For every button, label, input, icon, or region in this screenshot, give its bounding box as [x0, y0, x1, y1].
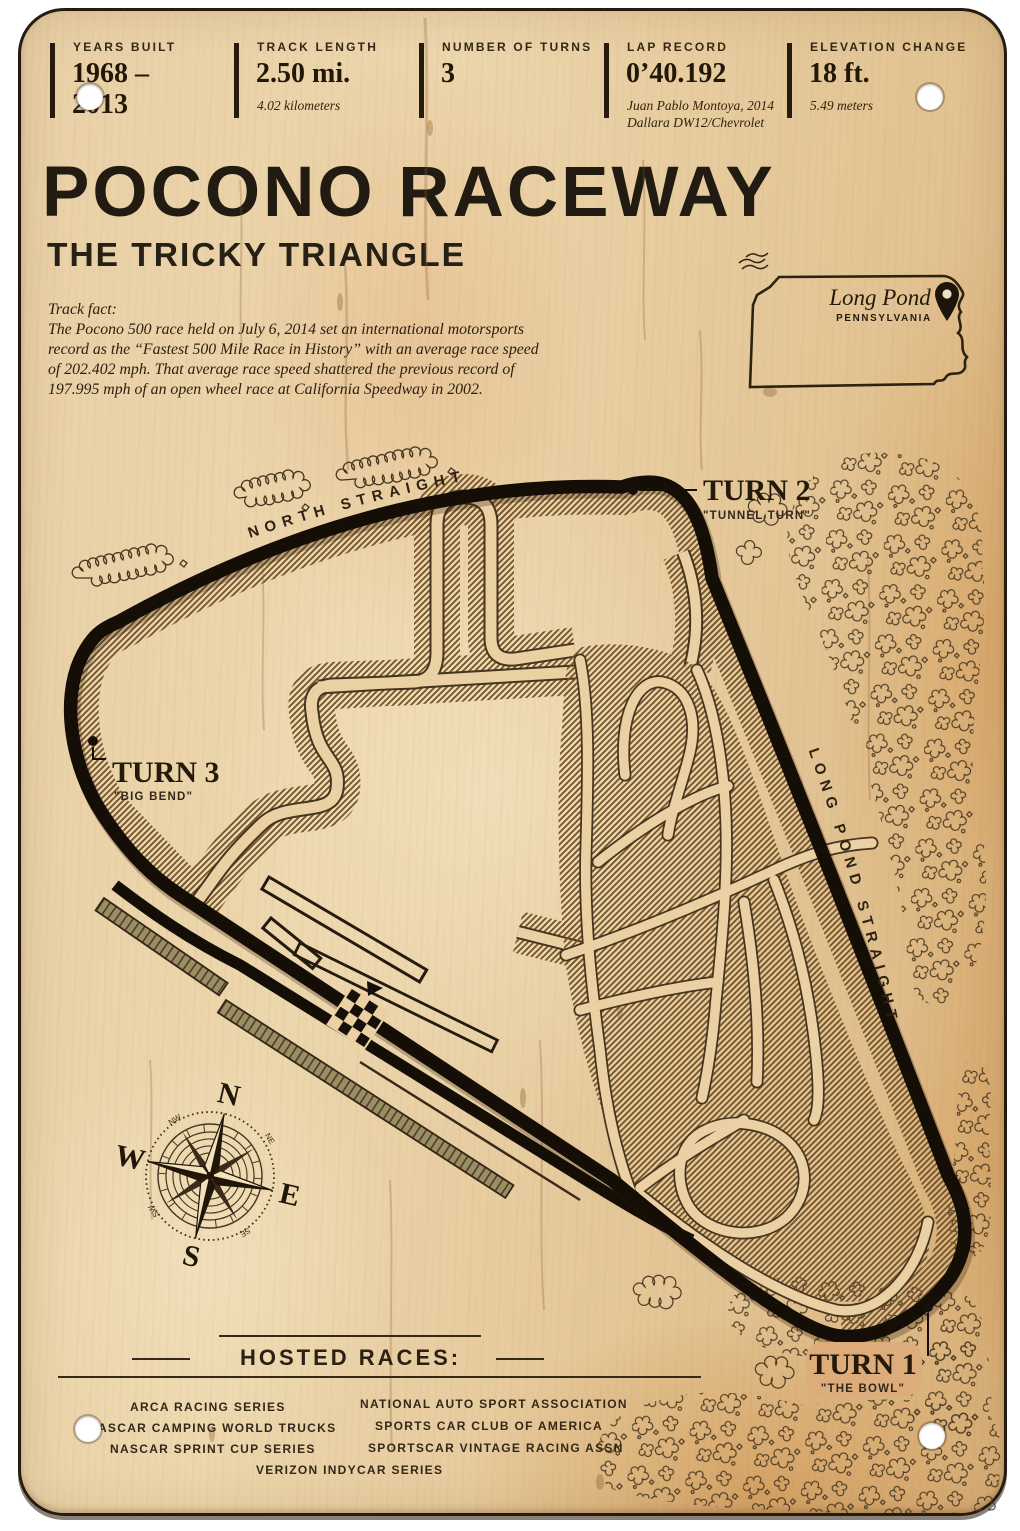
svg-text:"BIG BEND": "BIG BEND" — [114, 791, 193, 803]
svg-text:NE: NE — [263, 1132, 277, 1146]
svg-text:NW: NW — [167, 1112, 183, 1127]
svg-text:SE: SE — [238, 1226, 252, 1239]
svg-text:N: N — [215, 1076, 244, 1113]
svg-text:"TUNNEL TURN": "TUNNEL TURN" — [703, 510, 811, 522]
svg-text:TURN 2: TURN 2 — [703, 474, 811, 507]
svg-text:E: E — [276, 1177, 303, 1214]
svg-text:W: W — [112, 1139, 149, 1178]
svg-text:TURN 3: TURN 3 — [112, 756, 220, 789]
svg-text:PENNSYLVANIA: PENNSYLVANIA — [836, 313, 932, 324]
svg-text:S: S — [180, 1238, 204, 1274]
svg-text:Long Pond: Long Pond — [828, 285, 931, 310]
svg-text:SW: SW — [146, 1203, 161, 1219]
